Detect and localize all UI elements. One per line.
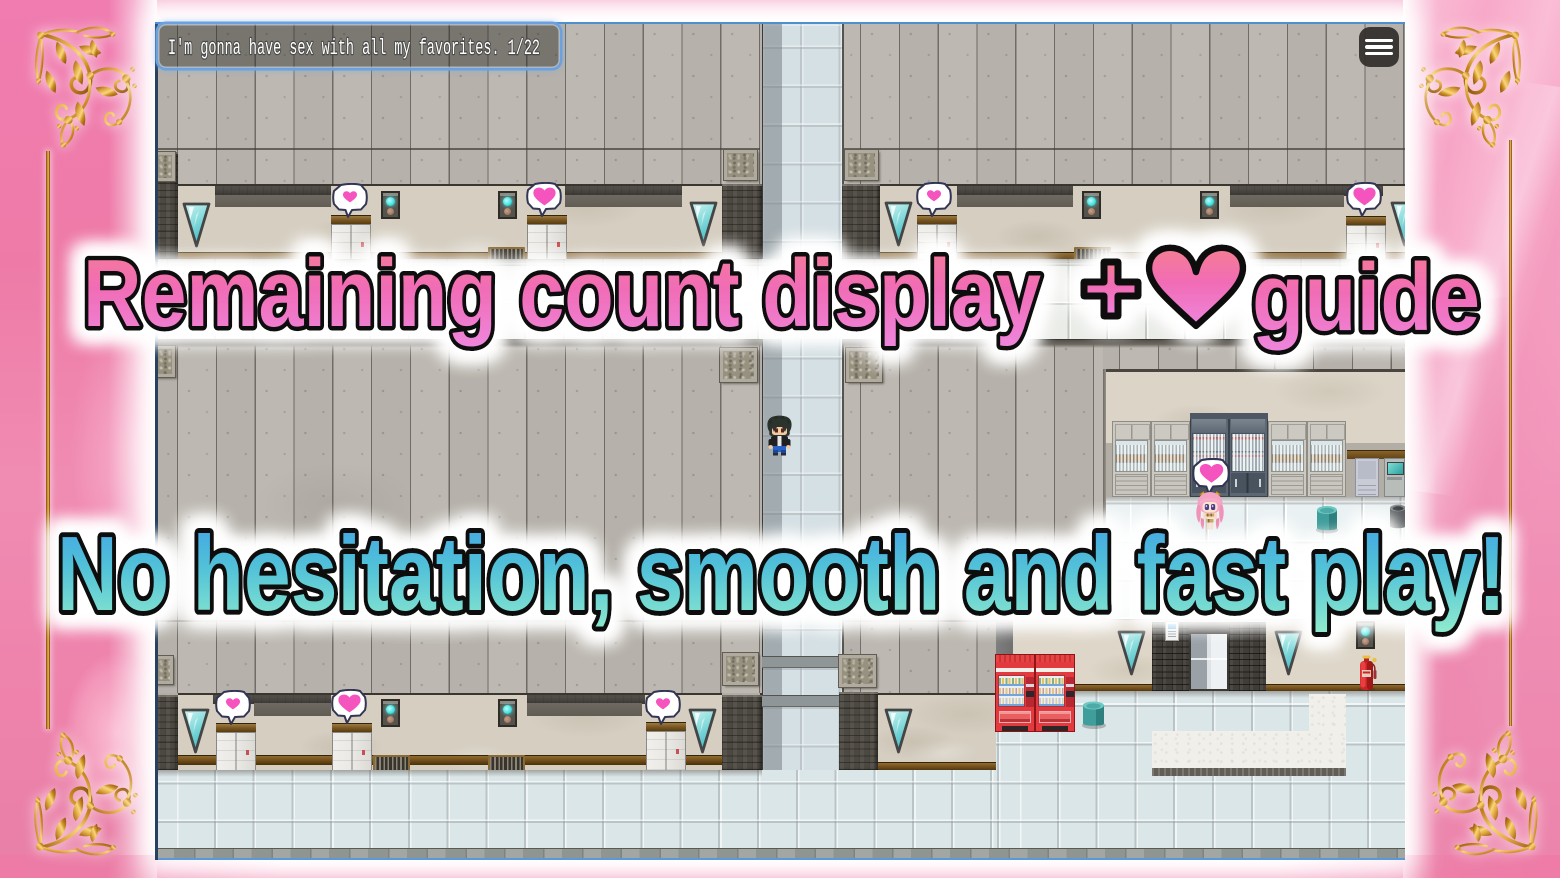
svg-text:guide: guide [1252, 244, 1480, 351]
svg-text:Remaining count display: Remaining count display [83, 240, 1041, 347]
svg-text:No hesitation, smooth and fast: No hesitation, smooth and fast play! [57, 515, 1506, 633]
